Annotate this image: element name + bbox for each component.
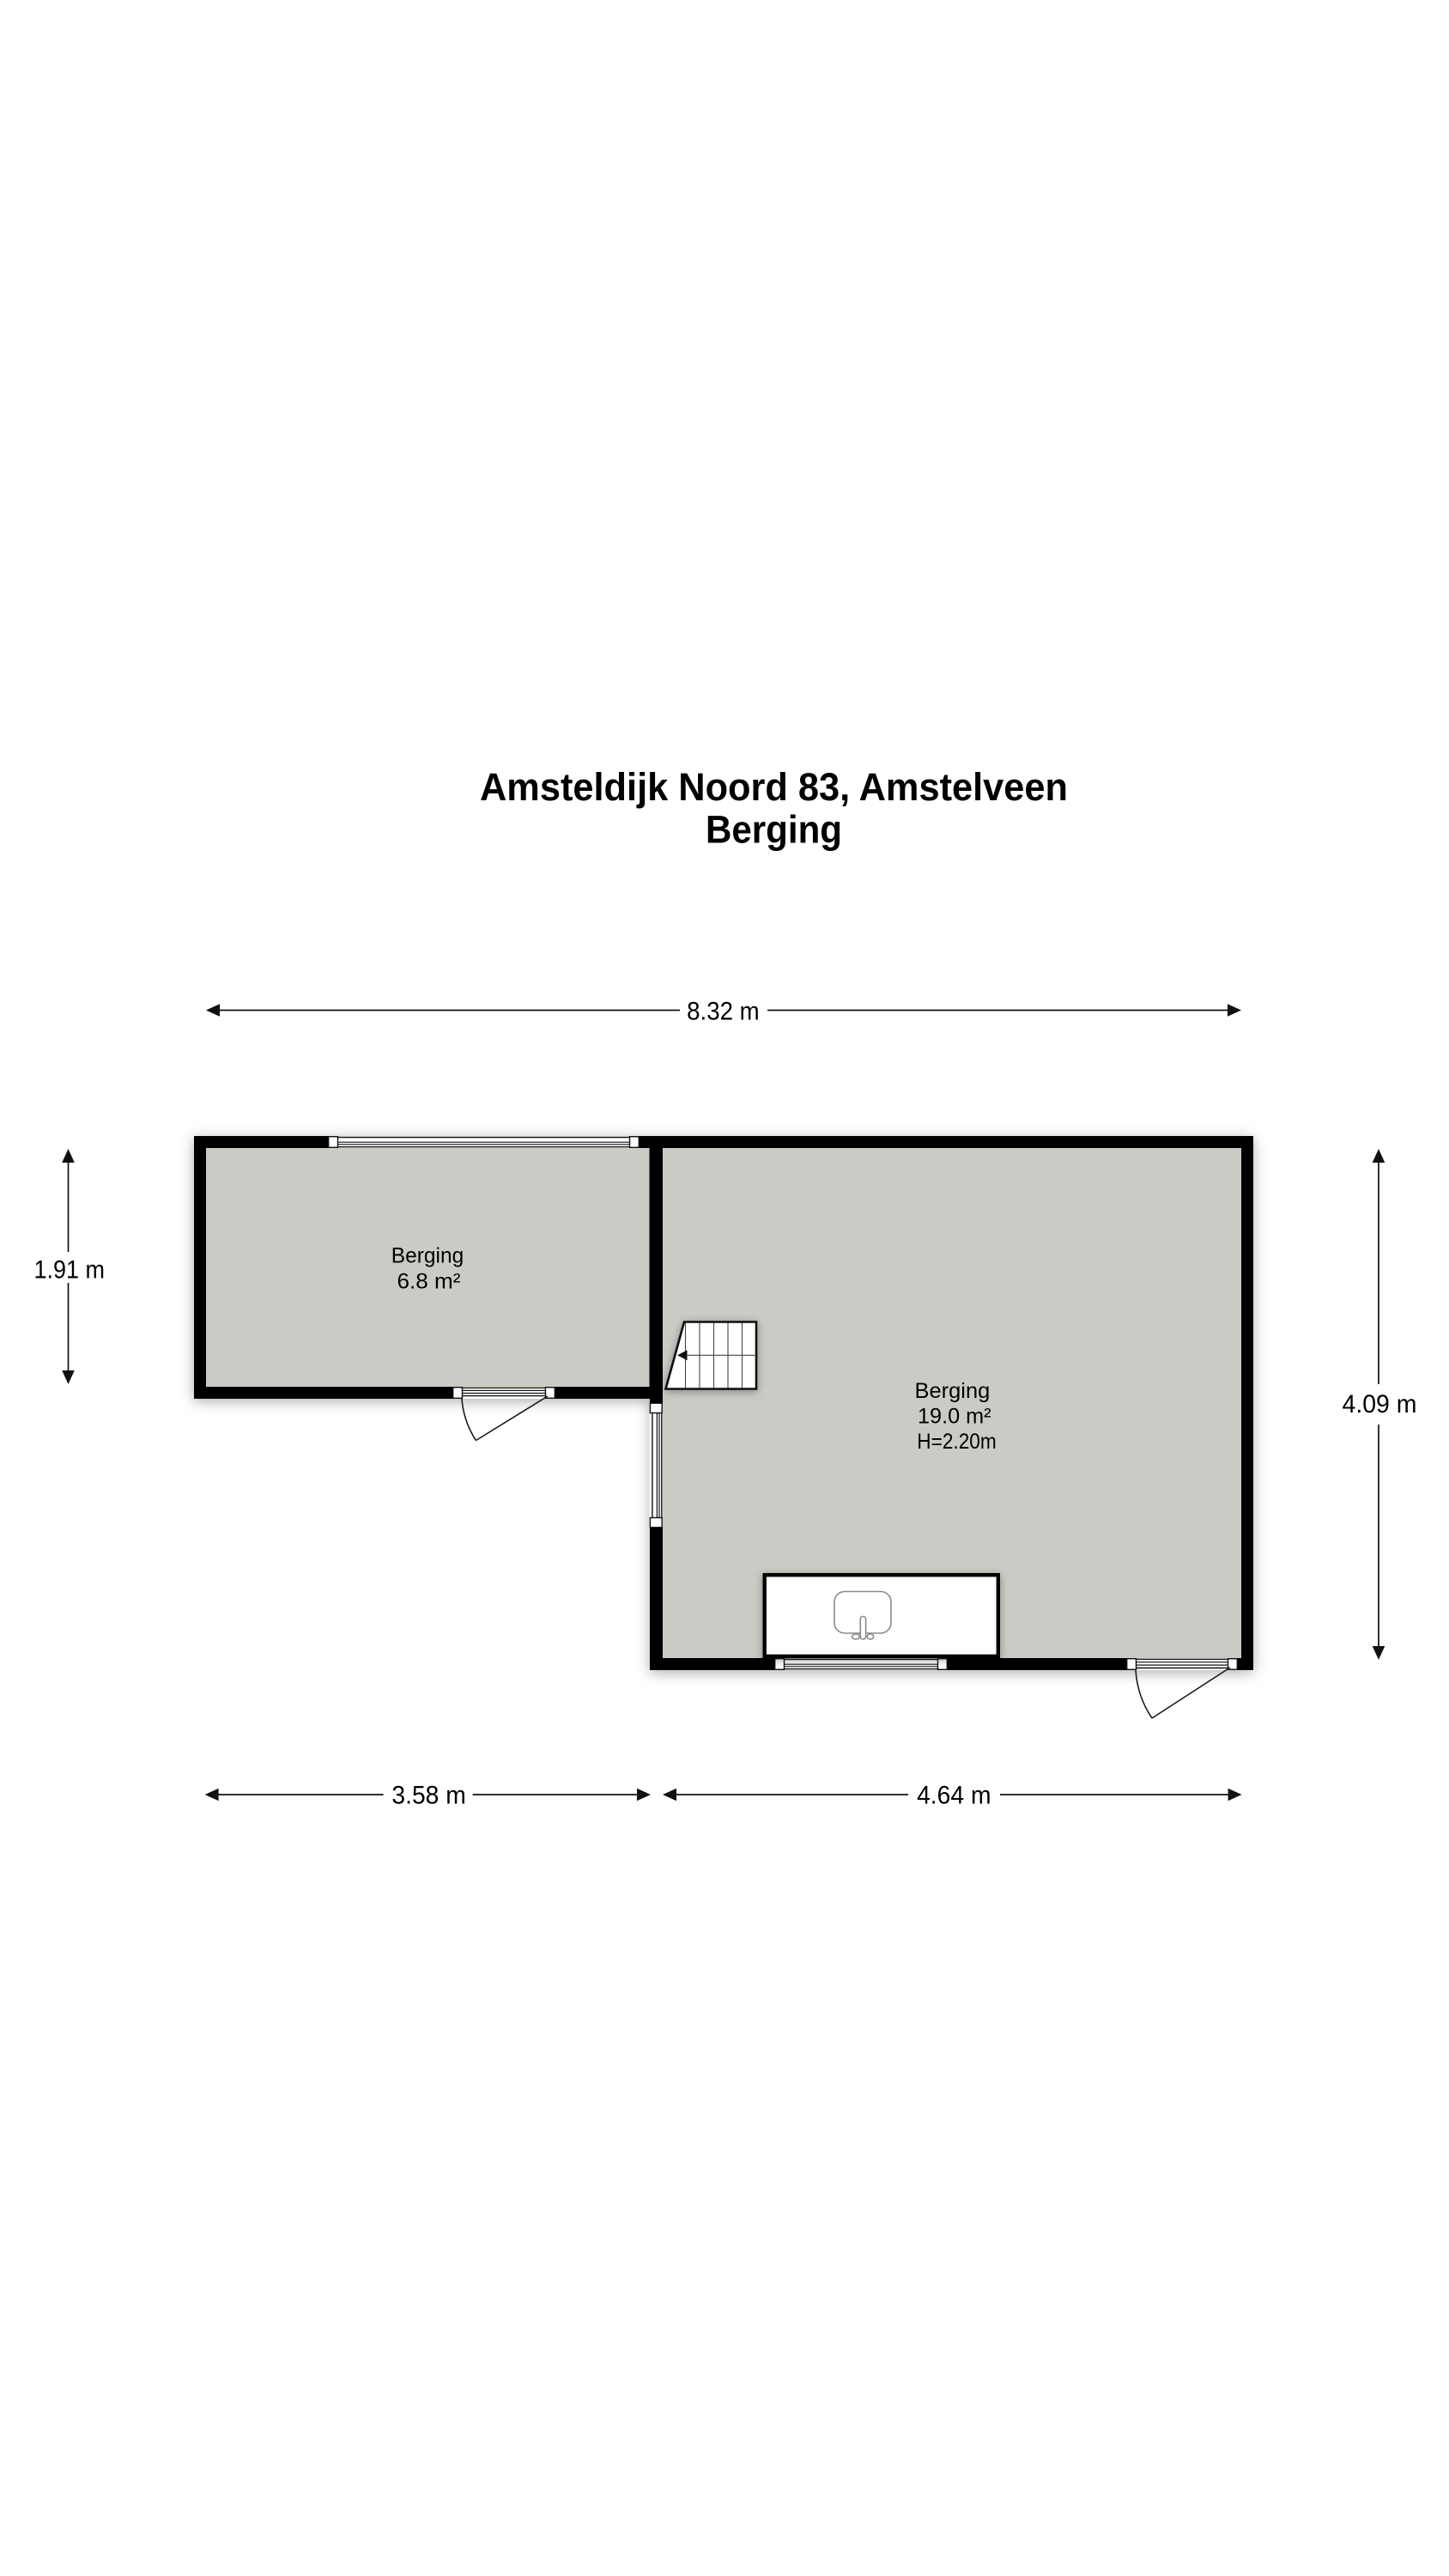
svg-text:Berging: Berging	[915, 1379, 991, 1403]
svg-text:Amsteldijk Noord 83, Amstelvee: Amsteldijk Noord 83, Amstelveen	[480, 765, 1068, 809]
svg-text:Berging: Berging	[391, 1244, 464, 1268]
svg-text:H=2.20m: H=2.20m	[917, 1430, 997, 1454]
svg-text:19.0 m²: 19.0 m²	[918, 1405, 991, 1429]
svg-text:1.91 m: 1.91 m	[33, 1256, 105, 1285]
svg-text:Berging: Berging	[706, 808, 842, 852]
svg-text:6.8 m²: 6.8 m²	[397, 1270, 461, 1294]
svg-text:8.32 m: 8.32 m	[687, 998, 760, 1026]
svg-text:4.64 m: 4.64 m	[917, 1781, 991, 1809]
svg-text:4.09 m: 4.09 m	[1343, 1390, 1417, 1419]
svg-text:3.58 m: 3.58 m	[391, 1781, 465, 1809]
